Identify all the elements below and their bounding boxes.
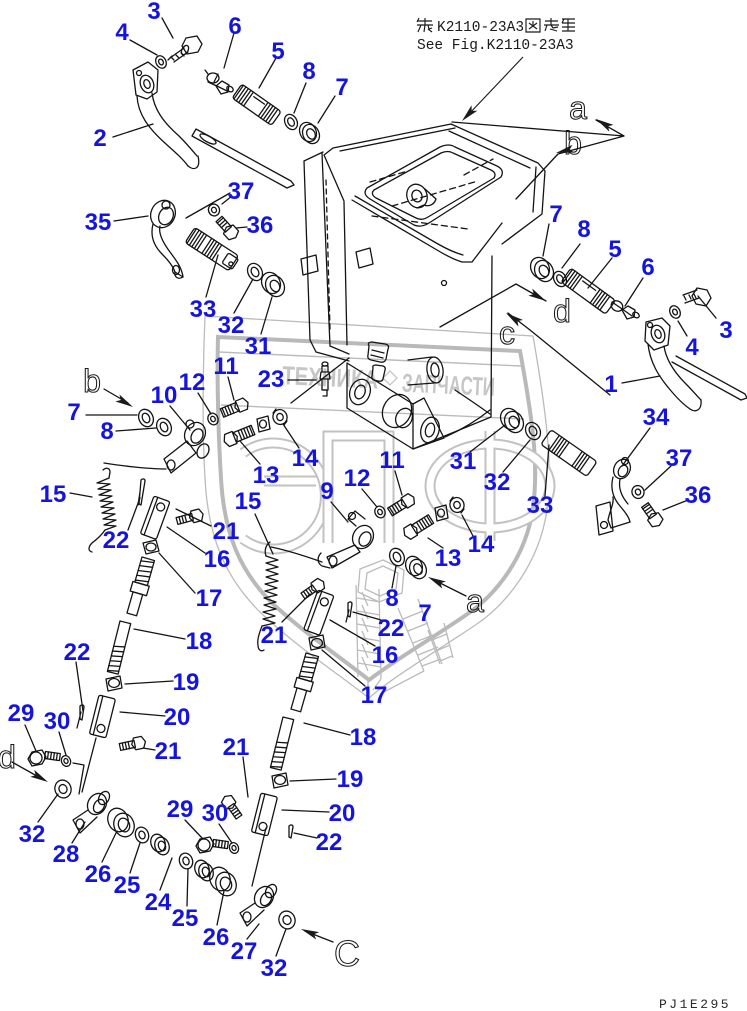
svg-text:33: 33 xyxy=(527,492,554,519)
svg-text:22: 22 xyxy=(378,615,405,642)
svg-text:a: a xyxy=(569,90,587,126)
svg-text:32: 32 xyxy=(19,821,46,848)
svg-text:a: a xyxy=(466,583,484,619)
svg-text:d: d xyxy=(0,739,16,775)
svg-text:3: 3 xyxy=(147,0,160,25)
svg-text:5: 5 xyxy=(271,38,284,65)
svg-text:18: 18 xyxy=(186,628,213,655)
svg-text:7: 7 xyxy=(67,399,80,426)
svg-text:24: 24 xyxy=(145,889,172,916)
svg-text:13: 13 xyxy=(435,545,462,572)
svg-text:b: b xyxy=(564,125,582,161)
svg-text:4: 4 xyxy=(115,19,129,46)
svg-text:See Fig.K2110-23A3: See Fig.K2110-23A3 xyxy=(417,38,574,54)
svg-text:19: 19 xyxy=(173,669,200,696)
svg-text:4: 4 xyxy=(685,334,699,361)
svg-text:8: 8 xyxy=(577,216,590,243)
svg-text:c: c xyxy=(499,315,515,351)
svg-text:b: b xyxy=(83,363,101,399)
svg-text:7: 7 xyxy=(418,600,431,627)
svg-text:22: 22 xyxy=(316,829,343,856)
svg-text:21: 21 xyxy=(213,518,240,545)
svg-text:K2110-23A3: K2110-23A3 xyxy=(437,20,524,36)
svg-text:29: 29 xyxy=(8,700,35,727)
svg-text:20: 20 xyxy=(329,800,356,827)
svg-text:20: 20 xyxy=(164,704,191,731)
svg-text:21: 21 xyxy=(223,734,250,761)
svg-text:15: 15 xyxy=(235,488,262,515)
svg-text:30: 30 xyxy=(202,800,229,827)
svg-text:8: 8 xyxy=(385,585,398,612)
svg-text:11: 11 xyxy=(213,353,238,380)
svg-text:3: 3 xyxy=(719,317,732,344)
svg-text:PJ1E295: PJ1E295 xyxy=(659,997,731,1011)
svg-text:14: 14 xyxy=(292,445,319,472)
svg-text:35: 35 xyxy=(85,209,112,236)
svg-text:18: 18 xyxy=(350,724,377,751)
svg-text:25: 25 xyxy=(114,872,141,899)
svg-text:16: 16 xyxy=(372,642,399,669)
svg-text:33: 33 xyxy=(190,296,217,323)
svg-text:17: 17 xyxy=(361,682,388,709)
svg-text:16: 16 xyxy=(204,546,231,573)
svg-text:26: 26 xyxy=(85,861,112,888)
svg-text:2: 2 xyxy=(93,125,106,152)
svg-text:32: 32 xyxy=(484,469,511,496)
svg-text:14: 14 xyxy=(468,531,495,558)
svg-text:29: 29 xyxy=(167,796,194,823)
svg-text:5: 5 xyxy=(608,236,621,263)
svg-text:C: C xyxy=(334,933,360,974)
svg-text:32: 32 xyxy=(218,312,245,339)
svg-text:d: d xyxy=(553,293,571,329)
svg-text:10: 10 xyxy=(151,382,178,409)
svg-text:26: 26 xyxy=(203,924,230,951)
svg-text:12: 12 xyxy=(179,369,206,396)
svg-text:11: 11 xyxy=(379,447,404,474)
svg-text:9: 9 xyxy=(320,478,333,505)
svg-text:6: 6 xyxy=(641,254,654,281)
svg-text:17: 17 xyxy=(196,585,223,612)
svg-text:31: 31 xyxy=(450,448,477,475)
svg-text:8: 8 xyxy=(302,58,315,85)
svg-text:27: 27 xyxy=(231,938,258,965)
svg-text:32: 32 xyxy=(261,955,288,982)
svg-text:31: 31 xyxy=(245,333,272,360)
svg-text:12: 12 xyxy=(344,465,371,492)
svg-text:6: 6 xyxy=(228,13,241,40)
svg-text:34: 34 xyxy=(643,404,670,431)
svg-text:36: 36 xyxy=(685,482,712,509)
svg-text:37: 37 xyxy=(228,178,255,205)
svg-text:22: 22 xyxy=(64,639,91,666)
svg-text:15: 15 xyxy=(40,481,67,508)
svg-text:28: 28 xyxy=(53,841,80,868)
svg-text:22: 22 xyxy=(103,527,130,554)
svg-text:1: 1 xyxy=(604,371,617,398)
svg-text:7: 7 xyxy=(335,74,348,101)
svg-text:21: 21 xyxy=(155,738,182,765)
svg-text:36: 36 xyxy=(247,212,274,239)
svg-text:25: 25 xyxy=(172,905,199,932)
svg-text:21: 21 xyxy=(261,622,288,649)
svg-text:23: 23 xyxy=(258,366,285,393)
svg-text:8: 8 xyxy=(100,418,113,445)
svg-text:13: 13 xyxy=(253,462,280,489)
svg-text:7: 7 xyxy=(549,201,562,228)
svg-text:19: 19 xyxy=(337,766,364,793)
svg-text:30: 30 xyxy=(44,708,71,735)
svg-text:37: 37 xyxy=(666,445,693,472)
